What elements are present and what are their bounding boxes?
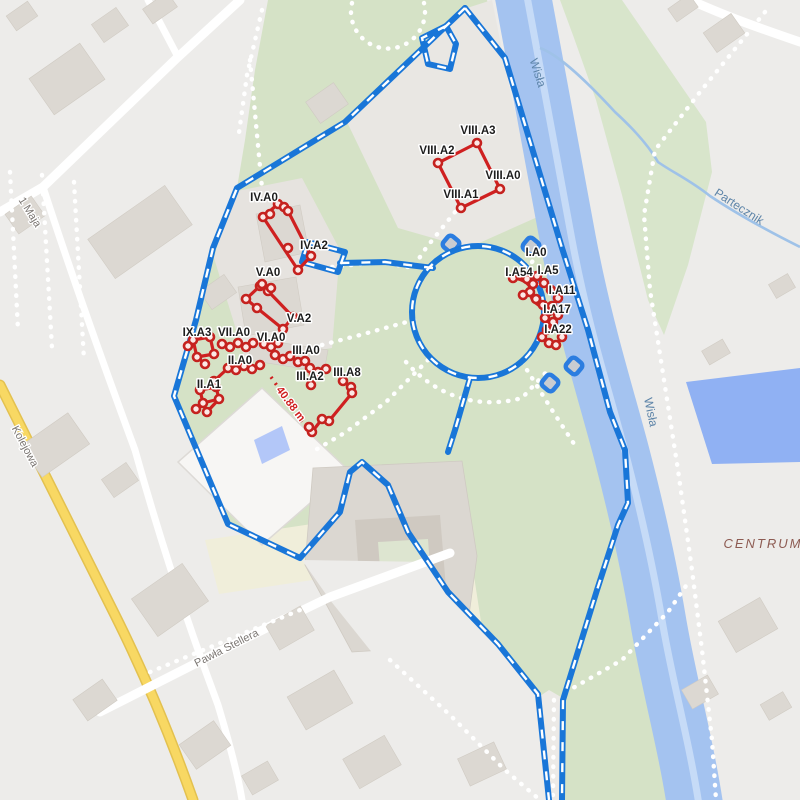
site-label-i-a17[interactable]: I.A17 bbox=[543, 304, 571, 316]
map-canvas: 1 Maja Kolejowa Pawła Stellera Wisła Wis… bbox=[0, 0, 800, 800]
site-label-ii-a1[interactable]: II.A1 bbox=[197, 379, 222, 391]
site-label-vi-a0[interactable]: VI.A0 bbox=[257, 332, 286, 344]
site-label-i-a22[interactable]: I.A22 bbox=[544, 324, 572, 336]
site-label-v-a2[interactable]: V.A2 bbox=[287, 313, 312, 325]
site-label-iii-a8[interactable]: III.A8 bbox=[333, 367, 361, 379]
map-viewport: 1 Maja Kolejowa Pawła Stellera Wisła Wis… bbox=[0, 0, 800, 800]
site-label-i-a5[interactable]: I.A5 bbox=[537, 265, 559, 277]
site-label-viii-a3[interactable]: VIII.A3 bbox=[460, 125, 495, 137]
site-label-ix-a3[interactable]: IX.A3 bbox=[183, 327, 212, 339]
site-label-i-a0[interactable]: I.A0 bbox=[525, 247, 546, 259]
site-label-v-a0[interactable]: V.A0 bbox=[256, 267, 281, 279]
site-label-iii-a0[interactable]: III.A0 bbox=[292, 345, 319, 357]
site-label-iii-a2[interactable]: III.A2 bbox=[296, 371, 323, 383]
district-label-centrum: CENTRUM bbox=[724, 536, 800, 551]
site-label-ii-a0[interactable]: II.A0 bbox=[228, 355, 252, 367]
site-label-vii-a0[interactable]: VII.A0 bbox=[218, 327, 250, 339]
site-label-viii-a1[interactable]: VIII.A1 bbox=[443, 189, 479, 201]
site-label-viii-a0[interactable]: VIII.A0 bbox=[485, 170, 520, 182]
site-label-iv-a0[interactable]: IV.A0 bbox=[250, 192, 278, 204]
site-label-iv-a2[interactable]: IV.A2 bbox=[300, 240, 328, 252]
site-label-viii-a2[interactable]: VIII.A2 bbox=[419, 145, 454, 157]
site-label-i-a11[interactable]: I.A11 bbox=[549, 285, 576, 297]
site-label-i-a54[interactable]: I.A54 bbox=[505, 267, 533, 279]
